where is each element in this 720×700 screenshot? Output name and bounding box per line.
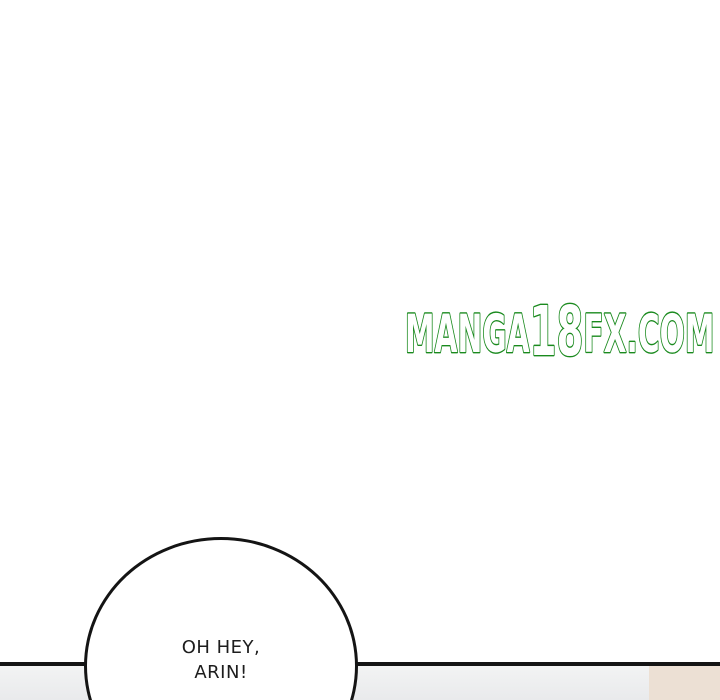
watermark-part-manga: MANGA [405, 304, 530, 363]
floor-beige-panel [649, 666, 720, 700]
watermark-part-fxcom: FX.COM [583, 304, 714, 363]
speech-bubble-line1: OH HEY, [182, 635, 261, 660]
manga-panel: MANGA18FX.COM OH HEY, ARIN! [0, 0, 720, 700]
watermark: MANGA18FX.COM [402, 297, 720, 363]
watermark-text: MANGA18FX.COM [405, 297, 714, 363]
speech-bubble: OH HEY, ARIN! [84, 537, 358, 700]
watermark-part-18: 18 [530, 297, 584, 363]
speech-bubble-line2: ARIN! [194, 660, 247, 685]
